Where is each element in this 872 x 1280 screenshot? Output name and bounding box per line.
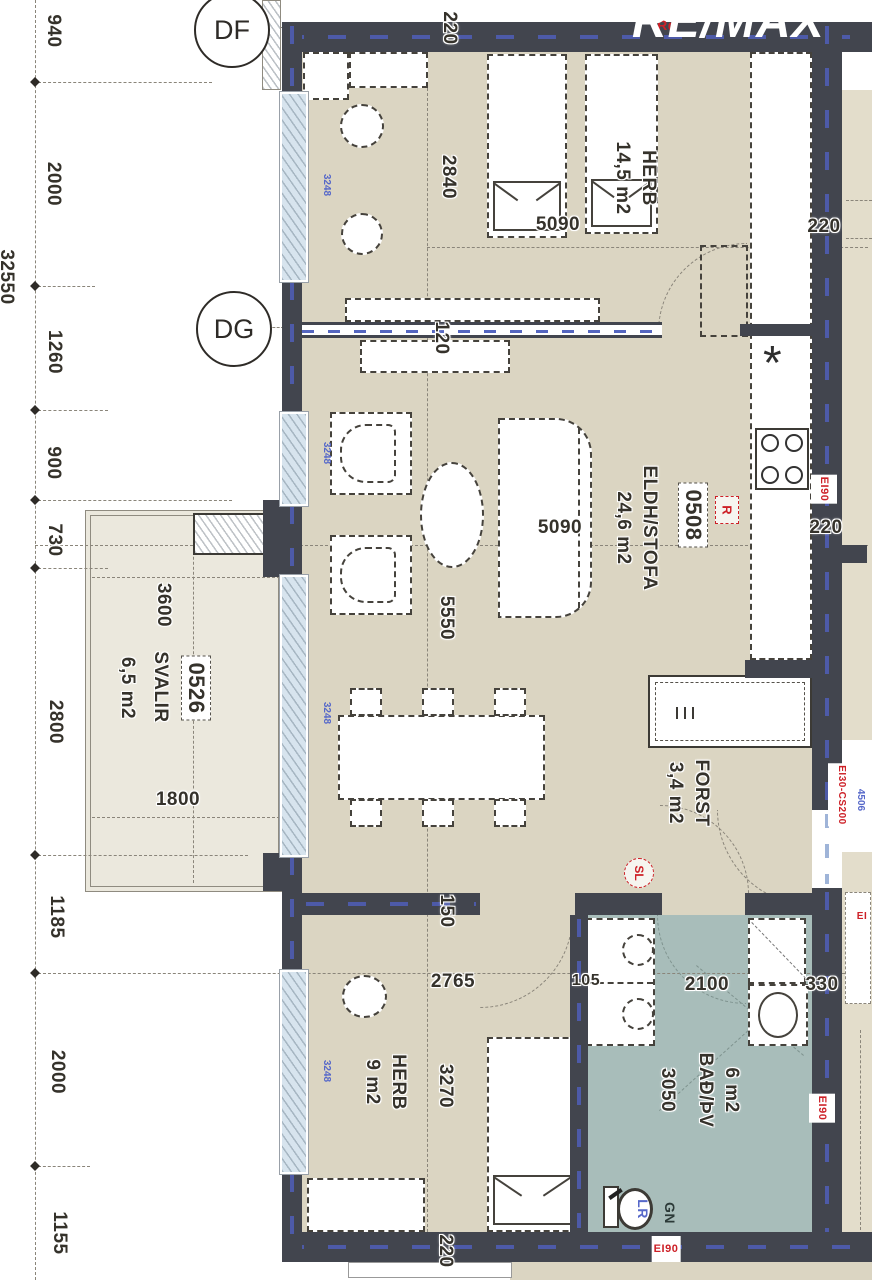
window-balcony-door [280,575,308,857]
dining-table [338,715,545,800]
wall-kitchen-stub [745,660,812,678]
dim-2000a: 2000 [40,162,66,206]
dim-120: 120 [428,321,454,354]
dining-chair-4 [350,799,382,827]
wall-bath-left [570,915,588,1232]
room-label-eldh: ELDH/STOFA 24,6 m2 [610,466,662,591]
marker-sl: SL [624,858,654,888]
marker-lr: LR [630,1199,656,1219]
balcony-column-bottom [263,853,283,891]
dining-chair-3 [494,688,526,716]
dim-chain-line [35,0,36,1280]
stool-bedroom [342,975,387,1018]
armchair-1 [330,412,412,495]
room-label-herb-bottom: HERB 9 m2 [359,1054,411,1110]
wall-mid-c [745,893,812,915]
marker-r-box: R [715,496,739,524]
armchair-2 [330,535,412,615]
wall-mid-b [575,893,662,915]
wall-right-upper [812,22,842,810]
room-label-forst: FORST 3,4 m2 [662,760,714,827]
room-area-svalir: 6,5 m2 [114,657,140,719]
room-label-svalir: SVALIR [147,651,173,722]
bath-sink-unit [748,984,808,1046]
fire-ei90-right-a: EI90 [811,475,837,504]
dining-chair-6 [494,799,526,827]
dim-220-kitchen-b: 220 [809,515,842,541]
dim-connector-7 [38,1166,90,1167]
dim-3600: 3600 [150,583,176,627]
wall-left-2 [282,278,302,412]
remax-logo: RE/MAX [632,0,825,49]
window-code-2: 3248 [313,442,339,464]
dim-5090-sofa: 5090 [538,515,582,541]
marker-gn: GN [657,1202,683,1224]
shower [748,918,806,984]
floorplan-page: { "branding": { "logo": "RE/MAX" }, "gri… [0,0,872,1280]
dim-1185: 1185 [43,895,69,938]
dim-2800: 2800 [42,700,68,744]
stool-1 [340,104,384,148]
dim-1155: 1155 [46,1211,72,1254]
dim-5550: 5550 [433,596,459,640]
bottom-sill [348,1262,512,1278]
wall-partition-stub [740,324,812,336]
wall-left-4 [282,853,302,970]
fire-ei90-bottom: EI90 [652,1236,681,1262]
wall-left-1 [282,22,302,92]
dim-connector-1 [38,82,212,83]
closet-b [349,52,428,88]
wall-partition-thin [302,322,662,338]
dim-2100: 2100 [685,972,729,998]
dim-5090-bed: 5090 [536,212,580,238]
room-number-0508: 0508 [678,483,708,548]
dim-2000b: 2000 [44,1050,70,1094]
dim-730: 730 [41,523,67,556]
dim-1260: 1260 [41,330,67,374]
dim-1800: 1800 [156,787,200,813]
grid-marker-df: DF [194,0,270,68]
fire-ei90-right-b: EI90 [809,1094,835,1123]
desk-bedroom [307,1178,425,1232]
window-code-3: 3248 [313,702,339,724]
coffee-table [420,462,484,568]
window-living-2 [280,412,308,506]
dim-connector-5 [38,568,108,569]
dim-900: 900 [40,446,66,479]
closet-a [303,52,349,100]
dim-bottom-220: 220 [432,1234,458,1267]
dim-330: 330 [805,972,838,998]
dim-line-vertical-mid [427,43,428,1232]
window-bedroom [280,970,308,1174]
dim-connector-3 [38,410,108,411]
dim-3270: 3270 [432,1064,458,1108]
floor-corridor-right [842,90,872,1262]
room-label-herb-top: HERB 14,5 m2 [609,141,661,214]
dim-connector-2 [38,286,95,287]
wall-right-lower [812,888,842,1262]
dim-150: 150 [433,894,459,927]
room-label-bad: 6 m2 BAÐ/ÞV [692,1053,744,1128]
dim-connector-4 [38,500,232,501]
wall-left-3 [282,502,302,575]
dim-3050: 3050 [654,1068,680,1112]
dining-chair-1 [350,688,382,716]
floor-door-gap-forst [660,893,745,915]
balcony-column-top [263,500,283,577]
wall-bottom [282,1232,872,1262]
window-code-4: 3248 [313,1060,339,1082]
stool-2 [341,213,383,255]
dim-105: 105 [572,968,600,994]
fire-ei-edge: EI [855,904,869,930]
dining-chair-2 [422,688,454,716]
bed-1 [487,54,567,238]
stove [755,428,809,490]
dim-940: 940 [40,14,66,47]
floor-door-gap-bedroom [480,893,575,915]
wardrobe [648,675,812,748]
dim-2840: 2840 [435,155,461,199]
dim-total: 32550 [0,249,19,304]
wall-left-5 [282,1170,302,1262]
bed-bedroom [487,1037,578,1232]
wall-stub-outside-right [842,545,867,563]
dim-2765: 2765 [431,969,475,995]
balcony-door-leaf [193,513,265,555]
window-living-1 [280,92,308,282]
grid-marker-dg: DG [196,291,272,367]
dim-connector-6 [38,855,248,856]
kitchen-sink-icon: * [763,336,782,391]
floor-bottom-strip [510,1262,872,1280]
dim-220-kitchen-a: 220 [807,214,840,240]
window-code-1: 3248 [313,174,339,196]
desk-partition [345,298,600,322]
dim-top-220: 220 [436,11,462,44]
dining-chair-5 [422,799,454,827]
door-code-4506: 4506 [847,789,872,811]
room-number-0526: 0526 [181,656,211,721]
